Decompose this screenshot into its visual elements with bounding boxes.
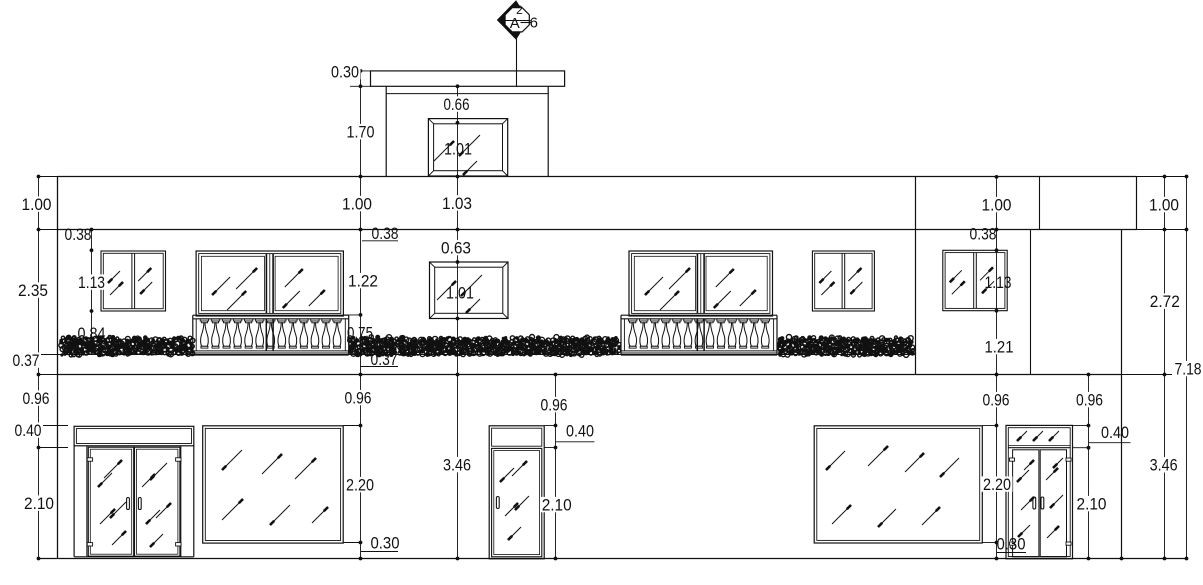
svg-text:2.20: 2.20 [983,475,1011,494]
svg-text:0.40: 0.40 [566,422,594,441]
svg-text:1.00: 1.00 [982,196,1012,215]
svg-text:0.96: 0.96 [983,391,1010,410]
svg-text:0.84: 0.84 [78,324,106,343]
svg-text:0.38: 0.38 [65,225,92,244]
svg-text:2.35: 2.35 [18,281,48,300]
svg-text:7.18: 7.18 [1175,360,1202,379]
svg-text:1.00: 1.00 [342,195,372,214]
svg-text:2: 2 [516,3,523,17]
svg-text:0.30: 0.30 [371,534,400,553]
svg-text:1.70: 1.70 [347,123,375,142]
svg-text:1.03: 1.03 [442,194,472,213]
svg-text:6: 6 [530,15,538,32]
svg-text:1.01: 1.01 [446,284,474,303]
svg-text:2.10: 2.10 [542,496,572,515]
svg-text:1.13: 1.13 [985,273,1012,292]
svg-text:3.46: 3.46 [443,456,471,475]
svg-text:0.96: 0.96 [541,396,568,415]
svg-text:2.10: 2.10 [1077,495,1107,514]
svg-text:0.40: 0.40 [15,421,42,440]
svg-text:1.01: 1.01 [444,140,472,159]
svg-text:0.96: 0.96 [1076,391,1103,410]
svg-text:2.72: 2.72 [1150,292,1180,311]
svg-text:0.30: 0.30 [997,535,1026,554]
svg-text:0.37: 0.37 [13,351,40,370]
svg-text:1.21: 1.21 [985,338,1014,357]
svg-text:0.96: 0.96 [345,389,372,408]
svg-text:1.13: 1.13 [78,273,105,292]
svg-text:0.38: 0.38 [970,225,997,244]
svg-text:0.66: 0.66 [444,95,470,114]
svg-text:1.00: 1.00 [1149,196,1179,215]
svg-text:2.10: 2.10 [24,494,54,513]
svg-text:0.96: 0.96 [23,389,50,408]
svg-text:A: A [510,15,520,32]
svg-text:3.46: 3.46 [1150,456,1178,475]
svg-text:0.30: 0.30 [331,63,359,82]
svg-text:1.00: 1.00 [22,195,52,214]
svg-text:0.63: 0.63 [441,239,471,258]
svg-text:0.40: 0.40 [1101,423,1129,442]
svg-text:2.20: 2.20 [346,476,374,495]
svg-text:1.22: 1.22 [348,272,378,291]
svg-text:0.75: 0.75 [347,324,373,343]
svg-text:0.38: 0.38 [372,224,399,243]
